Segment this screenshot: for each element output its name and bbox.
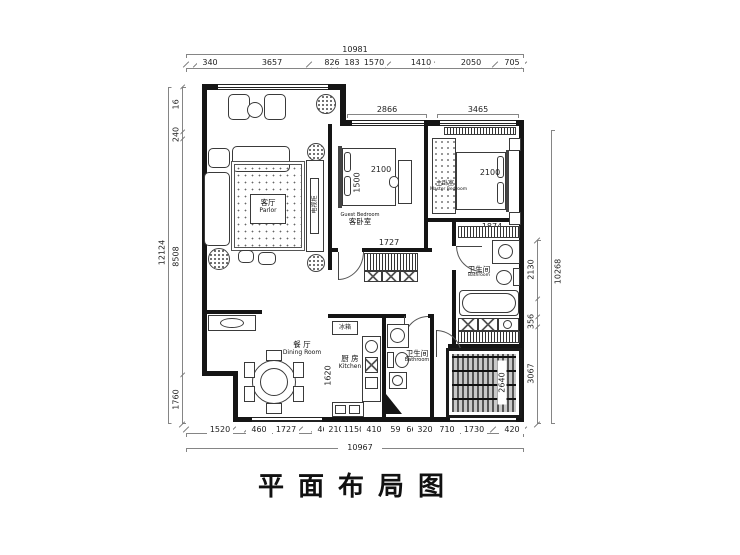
- dim-bottom-seg: 1520: [207, 425, 233, 434]
- hall-cabinet: [400, 271, 418, 282]
- wall: [382, 318, 386, 422]
- dim-tatami: 2640: [498, 361, 507, 405]
- desk-chair: [389, 176, 399, 188]
- room-label-bath-common: 卫生间 Bathroom: [404, 350, 430, 363]
- dim-line-top-segments: [186, 68, 524, 72]
- pillow: [497, 182, 504, 204]
- stove-burner: [365, 340, 378, 353]
- dim-top-seg: 340: [197, 58, 223, 67]
- dim-bottom-total: 10967: [338, 443, 382, 452]
- room-label-master: 主卧室 Master Bedroom: [430, 180, 460, 193]
- dim-right-seg: 3067: [527, 348, 536, 400]
- pillow: [344, 152, 351, 172]
- shower-corner: [386, 394, 402, 414]
- dim-tick: [183, 426, 189, 432]
- master-bed-headboard: [506, 150, 509, 212]
- dim-right-seg: 356: [527, 296, 536, 348]
- dim-line-right-segments: [537, 240, 541, 424]
- balcony-window: [218, 84, 328, 90]
- room-label-master-en: Master Bedroom: [430, 187, 460, 192]
- radiator: [444, 127, 516, 135]
- dim-bottom-seg: 710: [434, 425, 460, 434]
- room-label-dining: 餐 厅 Dining Room: [276, 340, 328, 356]
- master-wardrobe: [432, 138, 456, 214]
- dining-chair: [266, 350, 282, 361]
- hall-wardrobe: [364, 253, 418, 271]
- nightstand: [509, 212, 521, 225]
- toilet-tank: [387, 352, 394, 368]
- room-label-dining-en: Dining Room: [276, 349, 328, 356]
- room-label-bath-common-en: Bathroom: [404, 357, 430, 363]
- stove-grid: [365, 357, 378, 373]
- dim-hall-wardrobe: 1727: [374, 238, 404, 247]
- dim-guest-bed-depth: 1500: [353, 159, 362, 207]
- sofa-left: [204, 172, 230, 246]
- page-title: 平面布局图: [258, 466, 458, 503]
- dim-top-seg: 1410: [408, 58, 434, 67]
- dim-line-window-guest: [347, 114, 427, 118]
- room-label-kitchen-zh: 厨 房: [336, 354, 364, 363]
- room-label-bath-common-zh: 卫生间: [404, 350, 430, 357]
- tv-cabinet-label: 电视柜: [312, 179, 319, 231]
- wall: [328, 314, 406, 318]
- dim-tick: [490, 426, 496, 432]
- wall: [233, 371, 238, 422]
- dining-chair: [293, 386, 304, 402]
- dim-right-total: 10268: [554, 246, 563, 298]
- room-label-bath-master-zh: 卫生间: [466, 266, 492, 273]
- laundry-cabinet: [478, 318, 498, 331]
- dim-bottom-seg: 420: [499, 425, 525, 434]
- fridge-label: 冰箱: [334, 324, 356, 331]
- washing-machine-drum: [392, 375, 403, 386]
- dim-top-seg: 3657: [259, 58, 285, 67]
- dim-master-bed-width: 2100: [476, 168, 504, 177]
- dim-left-seg: 1760: [172, 374, 181, 426]
- dim-window-guest: 2866: [374, 105, 400, 114]
- dim-bottom-seg: 1727: [273, 425, 299, 434]
- guest-bedroom-window: [352, 120, 424, 126]
- room-label-kitchen: 厨 房 Kitchen: [336, 354, 364, 370]
- dim-bottom-seg: 460: [246, 425, 272, 434]
- dim-tick: [183, 61, 189, 67]
- pouf: [258, 252, 276, 265]
- toilet-tank: [513, 268, 520, 286]
- wall: [424, 124, 428, 252]
- dining-chair: [293, 362, 304, 378]
- sink-basin: [335, 405, 346, 414]
- wall: [362, 248, 432, 252]
- desk: [398, 160, 412, 204]
- dining-chair: [244, 386, 255, 402]
- toilet-bowl: [496, 270, 512, 285]
- room-label-guest-zh: 客卧室: [340, 218, 380, 225]
- dining-chair: [266, 403, 282, 414]
- dim-top-seg: 705: [499, 58, 525, 67]
- guest-bedroom-door: [338, 252, 364, 280]
- room-label-kitchen-en: Kitchen: [336, 363, 364, 370]
- room-label-parlor: 客厅 Parlor: [250, 198, 286, 214]
- sink-basin: [349, 405, 360, 414]
- dim-line-window-master: [437, 114, 519, 118]
- armchair: [208, 148, 230, 168]
- balcony-table: [247, 102, 263, 118]
- bathtub-basin: [462, 293, 516, 313]
- dim-left-seg: 240: [172, 109, 181, 161]
- dim-tick: [534, 421, 540, 427]
- entry-door-leaf: [436, 330, 437, 357]
- room-label-guest: Guest Bedroom 客卧室: [340, 212, 380, 225]
- dim-bottom-seg: 1730: [461, 425, 487, 434]
- dim-top-total: 10981: [330, 45, 380, 54]
- pouf: [238, 250, 254, 263]
- dim-left-seg: 8508: [172, 231, 181, 283]
- kitchen-cabinet: [365, 377, 378, 389]
- dim-tick: [492, 61, 498, 67]
- dim-top-seg: 1570: [361, 58, 387, 67]
- wash-basin: [498, 244, 513, 259]
- room-label-bath-master-en: Bathroom: [466, 273, 492, 278]
- hall-cabinet: [364, 271, 382, 282]
- plant-icon: [208, 248, 230, 270]
- closet-strip: [458, 226, 520, 238]
- guest-bedroom-door-leaf: [338, 252, 339, 280]
- plant-icon: [307, 143, 325, 161]
- dim-kitchen-width: 1620: [324, 350, 333, 402]
- plant-icon: [307, 254, 325, 272]
- closet-strip: [458, 331, 520, 343]
- room-label-bath-master: 卫生间 Bathroom: [466, 266, 492, 278]
- wall: [340, 120, 352, 126]
- wall: [452, 222, 456, 246]
- nightstand: [509, 138, 521, 151]
- dim-top-seg: 2050: [458, 58, 484, 67]
- pillow: [344, 176, 351, 196]
- dining-table-inner: [260, 368, 288, 396]
- dining-window: [252, 417, 322, 422]
- laundry-unit-drum: [503, 320, 512, 329]
- master-bedroom-window: [440, 120, 516, 126]
- room-label-dining-zh: 餐 厅: [276, 340, 328, 349]
- dim-bottom-seg: 410: [361, 425, 387, 434]
- balcony-chair: [264, 94, 286, 120]
- room-label-parlor-en: Parlor: [250, 207, 286, 214]
- sideboard-dish: [220, 318, 244, 328]
- dim-left-total: 12124: [158, 227, 167, 279]
- dim-window-master: 3465: [465, 105, 491, 114]
- wall: [202, 310, 262, 314]
- laundry-cabinet: [458, 318, 478, 331]
- wall: [430, 318, 434, 422]
- plant-icon: [316, 94, 336, 114]
- dim-guest-bed-width: 2100: [368, 165, 394, 174]
- wash-basin: [390, 328, 405, 343]
- room-label-parlor-zh: 客厅: [250, 198, 286, 207]
- hall-cabinet: [382, 271, 400, 282]
- dining-chair: [244, 362, 255, 378]
- master-bath-door-leaf: [456, 246, 482, 247]
- dim-tick: [306, 61, 312, 67]
